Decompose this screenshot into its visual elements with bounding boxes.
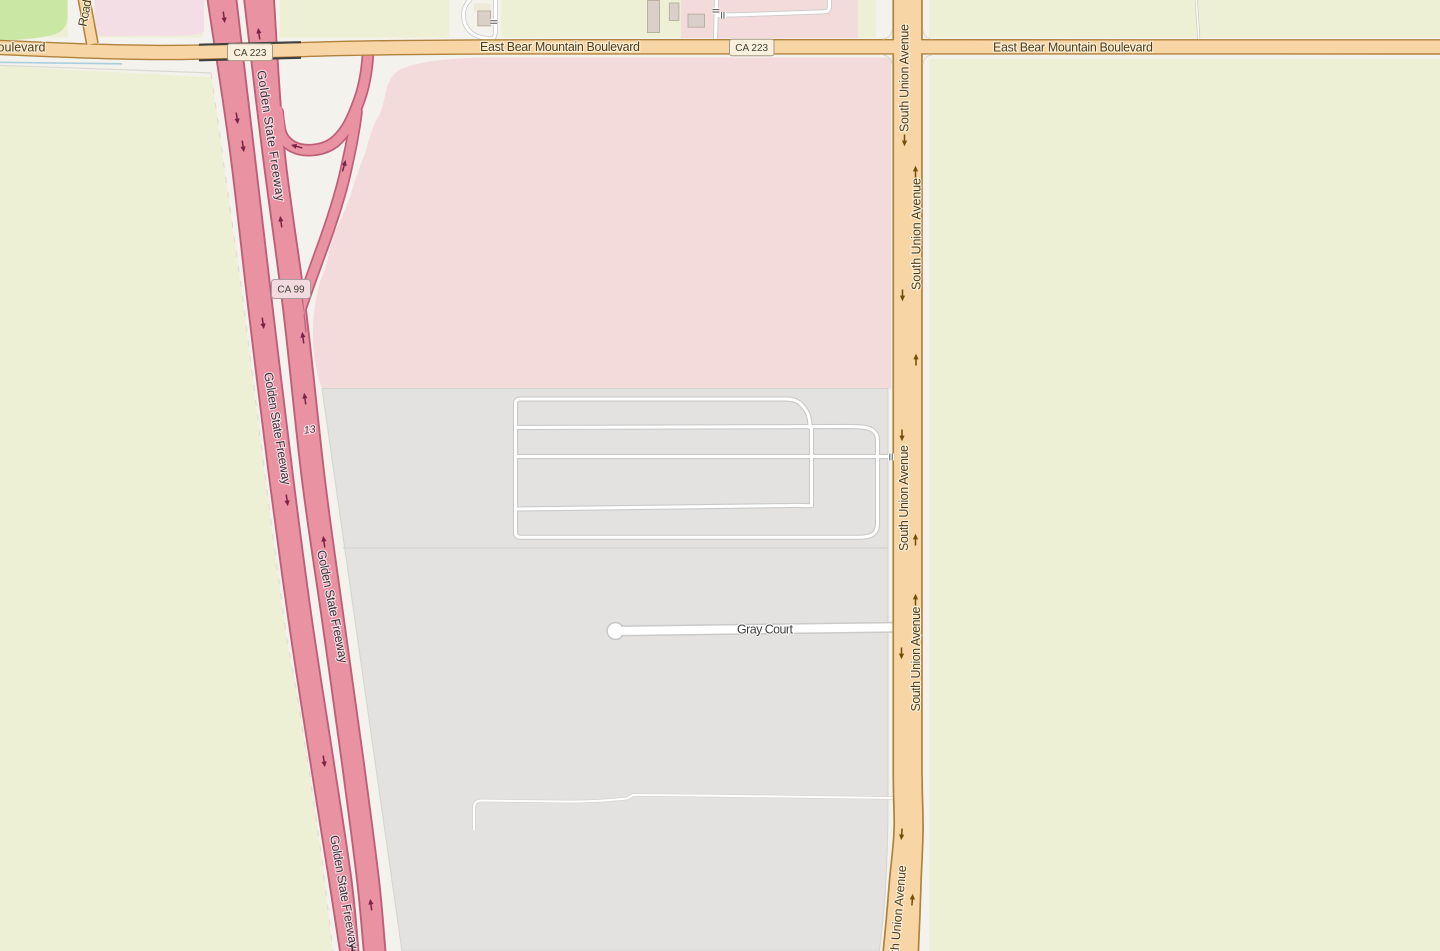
svg-text:13: 13 (303, 423, 316, 436)
svg-text:Gray Court: Gray Court (737, 623, 794, 637)
svg-text:East Bear Mountain Boulevard: East Bear Mountain Boulevard (480, 40, 640, 54)
svg-text:South Union Avenue: South Union Avenue (898, 24, 912, 132)
svg-text:CA 223: CA 223 (234, 48, 267, 59)
svg-text:South Union Avenue: South Union Avenue (910, 178, 924, 290)
svg-text:South Union Avenue: South Union Avenue (909, 606, 923, 711)
svg-text:CA 99: CA 99 (277, 285, 305, 296)
svg-text:East Bear Mountain Boulevard: East Bear Mountain Boulevard (0, 41, 46, 55)
svg-text:East Bear Mountain Boulevard: East Bear Mountain Boulevard (993, 40, 1153, 54)
svg-text:South Union Avenue: South Union Avenue (897, 445, 911, 551)
svg-text:CA 223: CA 223 (735, 43, 768, 54)
